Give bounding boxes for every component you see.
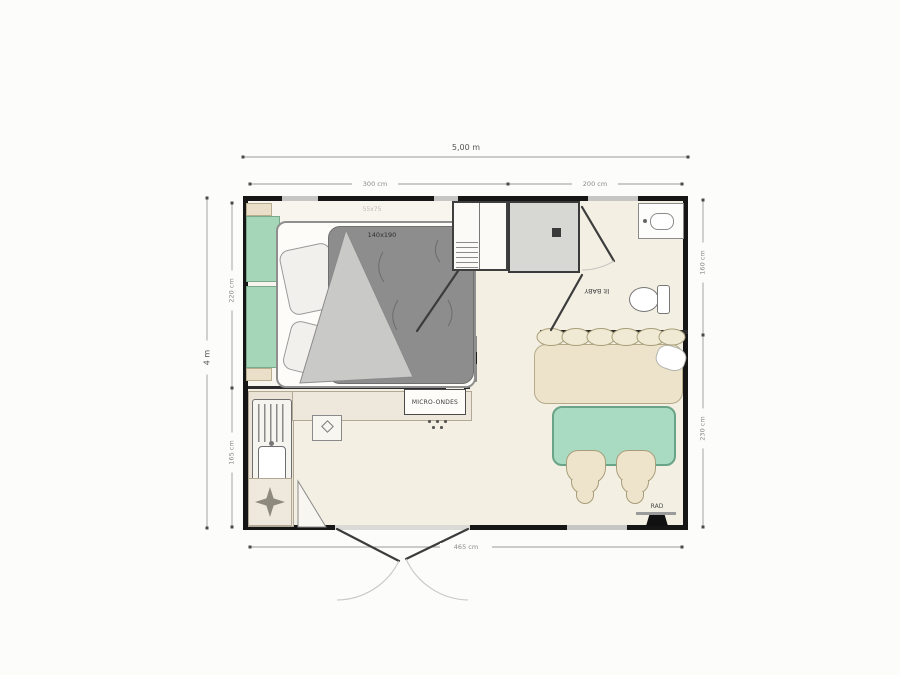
washbasin-bowl [650,213,674,230]
window-top-bedroom [282,196,318,201]
microwave-label: MICRO-ONDES [412,399,458,406]
toilet-bowl [629,287,659,312]
dim-top-right-segment: 200 cm [572,180,618,189]
sink-tap-icon [269,441,274,446]
stool [616,450,656,506]
dim-right-top-segment: 160 cm [699,243,708,283]
dim-left-top-segment: 220 cm [228,271,237,311]
sink-drainer-icon [258,404,286,442]
vent-dot [432,426,435,429]
heater-label: RAD [642,502,672,511]
shower-drain-icon [552,228,561,237]
baby-bed-label: lit BABY [574,286,620,295]
dim-bottom-inner: 465 cm [440,543,492,552]
microwave-box: MICRO-ONDES [404,389,466,415]
heater-icon [646,515,668,526]
floor-plan-page: MICRO-ONDES [0,0,900,675]
headboard-cabinet-bottom [246,286,280,368]
french-door-opening [335,525,470,530]
wardrobe-shelves [456,242,478,268]
window-bottom-dinette [567,525,627,530]
heater-shelf [636,512,676,515]
stool-seat [566,450,606,484]
stool [566,450,606,506]
wall-bathroom-dinette [540,330,688,334]
dim-top-total: 5,00 m [438,143,494,152]
vent-dot [436,420,439,423]
stool-base [576,492,594,504]
window-top-bathroom [588,196,638,201]
shower [508,201,580,273]
headboard-shelf-bottom [246,368,272,381]
washbasin-tap-icon [643,219,647,223]
bed-secondary-size-label: 55x75 [342,205,402,214]
vent-dot [444,420,447,423]
dim-left-bottom-segment: 165 cm [228,433,237,473]
dim-top-left-segment: 300 cm [352,180,398,189]
toilet-tank [657,285,670,314]
vent-dot [428,420,431,423]
dim-right-bottom-segment: 230 cm [699,409,708,449]
wardrobe-divider [479,203,480,269]
bed-size-label: 140x190 [352,231,412,240]
dim-left-total: 4 m [203,341,212,375]
vent-dot [440,426,443,429]
stool-seat [616,450,656,484]
headboard-cabinet-top [246,216,280,282]
headboard-shelf-top [246,203,272,216]
